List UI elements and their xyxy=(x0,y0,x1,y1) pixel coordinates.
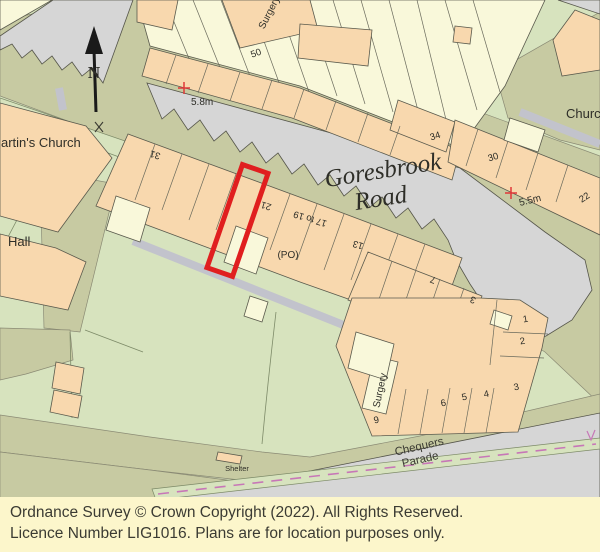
label-church: Church xyxy=(566,106,600,121)
label-martins-church: artin's Church xyxy=(1,135,81,150)
copyright-line2: Licence Number LIG1016. Plans are for lo… xyxy=(10,524,600,545)
os-location-plan: N Goresbrook Road Chequers Parade artin'… xyxy=(0,0,600,552)
spot-height-5-8: 5.8m xyxy=(191,97,213,108)
label-post-office: (PO) xyxy=(277,250,298,261)
label-hall: Hall xyxy=(8,234,31,249)
building xyxy=(52,362,84,394)
map-canvas: N Goresbrook Road Chequers Parade artin'… xyxy=(0,0,600,500)
copyright-bar: Ordnance Survey © Crown Copyright (2022)… xyxy=(0,497,600,552)
junction-footpath xyxy=(59,88,63,110)
north-label: N xyxy=(88,63,101,82)
building xyxy=(453,26,472,44)
label-shelter: Shelter xyxy=(225,464,249,473)
southeast-block xyxy=(336,298,548,436)
copyright-line1: Ordnance Survey © Crown Copyright (2022)… xyxy=(10,503,600,524)
